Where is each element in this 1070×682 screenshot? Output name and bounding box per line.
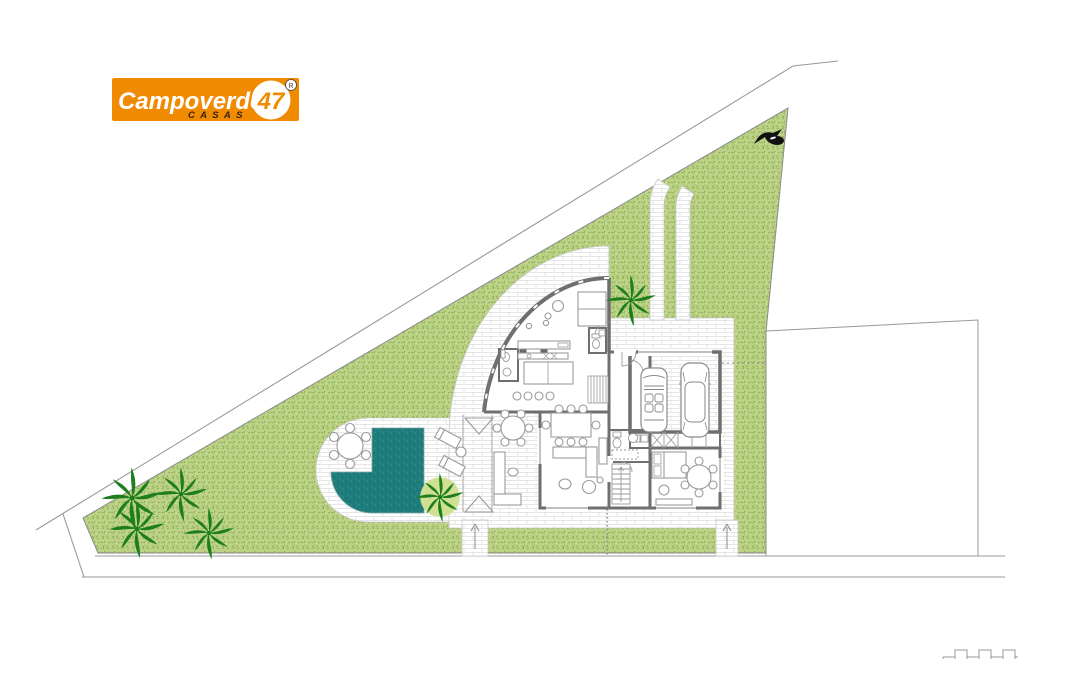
round-table: [687, 465, 711, 489]
stool: [524, 392, 532, 400]
logo-casas-text: C A S A S: [188, 110, 244, 121]
sofa: [586, 447, 597, 477]
pillow: [654, 466, 661, 476]
logo: Campoverde C A S A S 47 R: [112, 78, 299, 121]
stair-closet: [588, 376, 608, 403]
entrance-opening: [614, 349, 636, 356]
stairs: [612, 464, 630, 504]
bench: [656, 499, 692, 505]
plant: [526, 323, 531, 328]
side-table: [456, 447, 466, 457]
washbasin: [599, 330, 605, 336]
terrace-table: [501, 416, 525, 440]
dining-table: [551, 413, 591, 437]
stool: [546, 392, 554, 400]
toilet: [613, 438, 621, 448]
sideboard: [599, 438, 607, 464]
washbasin: [629, 434, 638, 443]
neighbor-plot-outline: [766, 320, 978, 556]
registered-mark-text: R: [288, 83, 293, 90]
pillow: [654, 454, 661, 464]
plant: [543, 320, 548, 325]
toilet: [593, 340, 600, 349]
coffee-table: [559, 479, 571, 489]
lounge-chair: [553, 301, 564, 312]
garden-table: [337, 433, 363, 459]
logo-47-text: 47: [257, 88, 286, 115]
plant: [597, 477, 603, 483]
armchair: [583, 481, 596, 494]
car-convertible: [641, 368, 667, 432]
kitchen-island: [524, 362, 573, 384]
car-sedan: [679, 363, 711, 437]
site-plan-page: Campoverde C A S A S 47 R: [0, 0, 1070, 682]
stool: [535, 392, 543, 400]
outdoor-sofa: [494, 452, 505, 494]
site-plan-drawing: Campoverde C A S A S 47 R: [0, 0, 1070, 682]
plant: [659, 485, 669, 495]
sink: [527, 354, 531, 358]
washbasin: [503, 368, 511, 376]
stool: [513, 392, 521, 400]
kitchen-counter: [518, 353, 568, 359]
washer: [641, 435, 648, 442]
outdoor-sofa: [494, 494, 521, 505]
